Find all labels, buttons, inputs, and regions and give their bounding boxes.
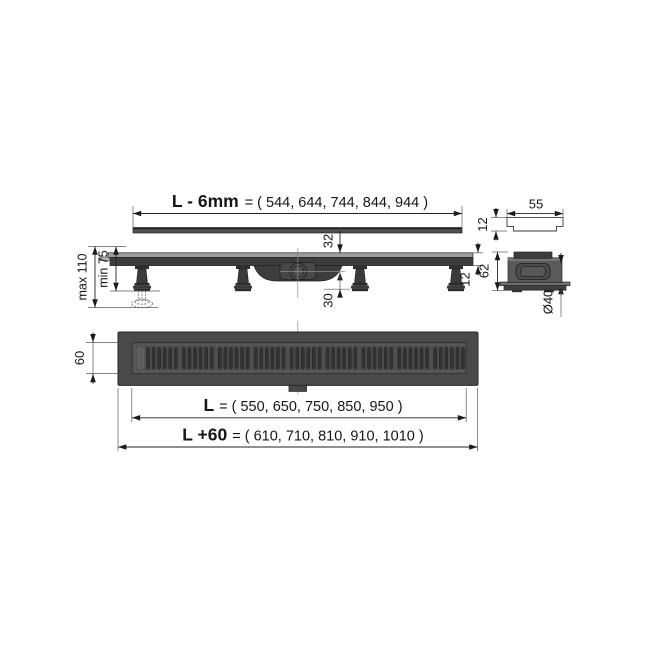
channel-end-view — [500, 252, 570, 292]
channel-rim — [108, 253, 473, 258]
leg — [234, 266, 252, 292]
technical-drawing-linear-shower-drain: L - 6mm= ( 544, 644, 744, 844, 944 ) 55 … — [0, 0, 650, 650]
grate-width-text: 60 — [72, 351, 87, 365]
height-max-text: max 110 — [76, 253, 90, 300]
dim-grate-width: 60 — [72, 333, 118, 384]
grate-in-channel — [514, 252, 552, 258]
channel-top-view — [118, 321, 478, 395]
leg — [133, 266, 151, 292]
leg — [351, 266, 369, 292]
adjustable-foot — [132, 291, 153, 307]
depth-top-text: 32 — [321, 234, 336, 248]
drawing-canvas: L - 6mm= ( 544, 644, 744, 844, 944 ) 55 … — [0, 0, 650, 650]
body-height-text: 62 — [477, 264, 492, 278]
grate-length-text: L - 6mm= ( 544, 644, 744, 844, 944 ) — [172, 191, 428, 211]
dim-channel-length: L= ( 550, 650, 750, 850, 950 ) — [132, 388, 466, 422]
grate-profile-shape — [507, 218, 563, 231]
height-min-text: min 75 — [97, 250, 111, 288]
base-plate — [504, 286, 566, 291]
grate-cross-section: 55 12 — [475, 197, 563, 241]
dim-overall-length: L +60= ( 610, 710, 810, 910, 1010 ) — [118, 388, 478, 451]
profile-width-text: 55 — [529, 197, 543, 212]
profile-height-text: 12 — [475, 217, 490, 231]
outlet-tab — [289, 385, 307, 391]
rim-height-text: 12 — [458, 272, 473, 286]
overall-length-text: L +60= ( 610, 710, 810, 910, 1010 ) — [182, 425, 423, 445]
depth-bottom-text: 30 — [321, 293, 336, 307]
channel-length-text: L= ( 550, 650, 750, 850, 950 ) — [203, 395, 402, 415]
brand-plate — [138, 348, 145, 369]
channel-side-view — [100, 248, 473, 308]
cover-strip-side-view — [133, 228, 462, 234]
outlet-diameter-text: Ø40 — [541, 290, 556, 315]
dim-grate-length: L - 6mm= ( 544, 644, 744, 844, 944 ) — [133, 191, 462, 227]
